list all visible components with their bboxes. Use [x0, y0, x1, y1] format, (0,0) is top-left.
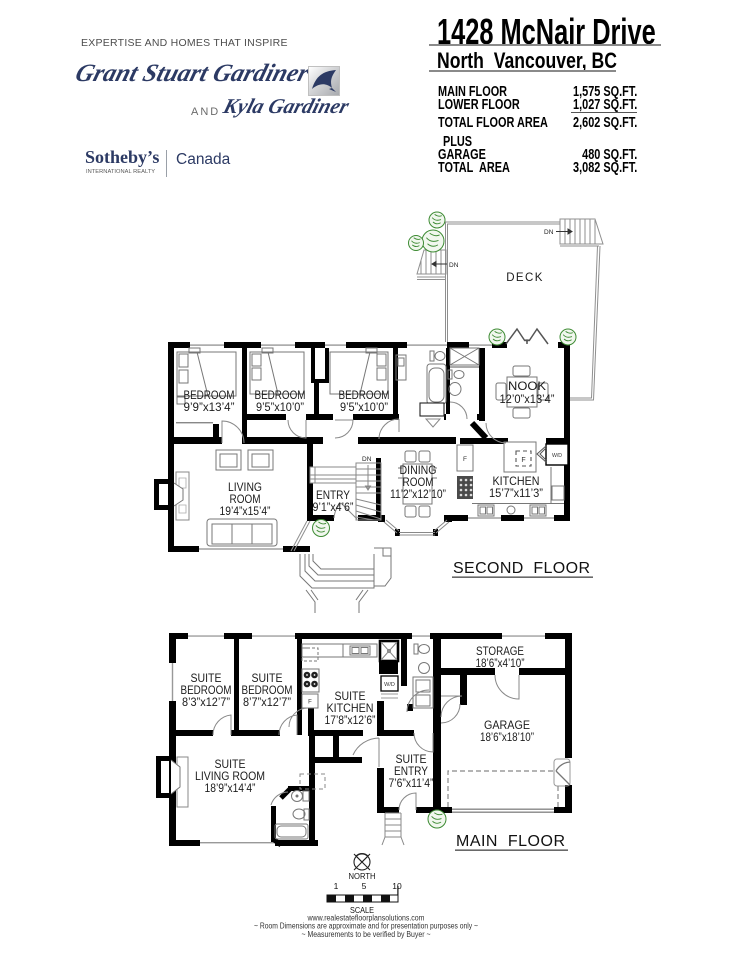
- svg-text:F: F: [308, 700, 312, 706]
- svg-text:7’6”x11’4”: 7’6”x11’4”: [389, 776, 434, 790]
- svg-text:9’5”x10’0”: 9’5”x10’0”: [256, 400, 304, 414]
- svg-text:9’5”x10’0”: 9’5”x10’0”: [340, 400, 388, 414]
- svg-text:15’7”x11’3”: 15’7”x11’3”: [489, 486, 543, 500]
- svg-text:11’2”x12’10”: 11’2”x12’10”: [390, 487, 446, 501]
- svg-text:9’9”x13’4”: 9’9”x13’4”: [184, 400, 235, 414]
- svg-text:8’3”x12’7”: 8’3”x12’7”: [182, 695, 230, 709]
- svg-text:NORTH: NORTH: [349, 871, 376, 881]
- svg-text:12’0”x13’4”: 12’0”x13’4”: [500, 392, 555, 406]
- svg-text:10: 10: [392, 881, 402, 891]
- svg-text:8’7”x12’7”: 8’7”x12’7”: [243, 695, 291, 709]
- svg-text:DN: DN: [362, 456, 372, 463]
- svg-text:DN: DN: [544, 229, 554, 236]
- svg-text:DECK: DECK: [506, 272, 544, 284]
- svg-text:9’1”x4’6”: 9’1”x4’6”: [313, 500, 354, 514]
- svg-text:W/D: W/D: [552, 453, 562, 459]
- svg-text:19’4”x15’4”: 19’4”x15’4”: [220, 504, 271, 518]
- svg-text:NOOK: NOOK: [508, 379, 546, 393]
- svg-text:SECOND FLOOR: SECOND FLOOR: [453, 560, 591, 577]
- svg-text:MAIN FLOOR: MAIN FLOOR: [456, 833, 566, 850]
- svg-text:~ Measurements to be verified: ~ Measurements to be verified by Buyer ~: [302, 930, 431, 939]
- svg-text:DN: DN: [449, 262, 459, 269]
- svg-text:1: 1: [334, 881, 339, 891]
- svg-text:18’9”x14’4”: 18’9”x14’4”: [205, 781, 256, 795]
- svg-text:W/D: W/D: [384, 682, 395, 688]
- svg-text:17’8”x12’6”: 17’8”x12’6”: [325, 713, 376, 727]
- svg-text:18’6”x4’10”: 18’6”x4’10”: [476, 656, 525, 670]
- svg-text:18’6”x18’10”: 18’6”x18’10”: [480, 730, 534, 744]
- svg-text:F: F: [521, 457, 525, 464]
- svg-text:5: 5: [362, 881, 367, 891]
- svg-text:F: F: [463, 456, 467, 463]
